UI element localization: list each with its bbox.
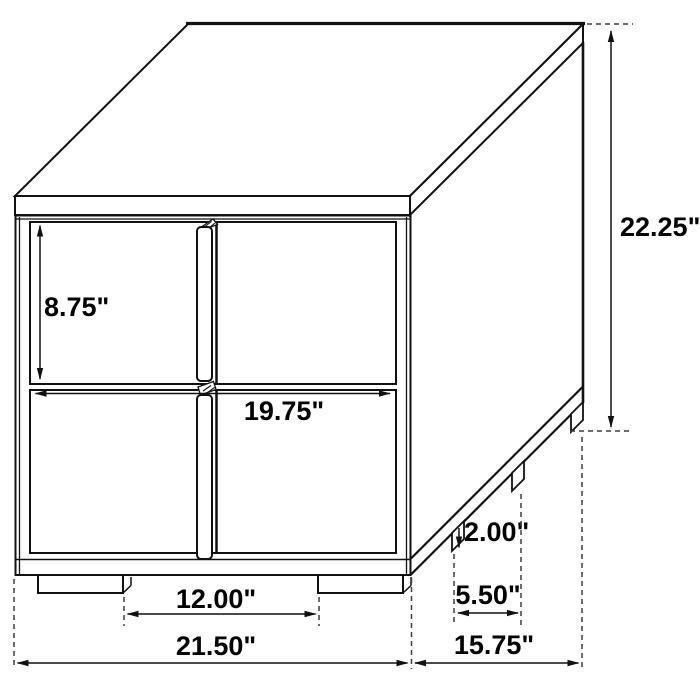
- dimension-label-drawer-width: 19.75": [244, 396, 324, 426]
- dimension-label-overall-width: 21.50": [176, 631, 256, 661]
- side-leg-back: [571, 402, 583, 432]
- side-skirt-bottom: [411, 403, 583, 575]
- dimension-front-leg-spacing: 12.00": [124, 584, 319, 626]
- top-slab-front: [15, 196, 410, 215]
- dimension-leg-height: 2.00": [459, 517, 529, 548]
- drawer-top-handle: [197, 219, 218, 395]
- front-leg-right: [318, 575, 403, 593]
- front-leg-left: [38, 575, 123, 593]
- dimension-diagram-canvas: 8.75" 19.75" 22.25" 2.00" 5.50" 12.00" 2…: [0, 0, 700, 700]
- dimension-overall-height: 22.25": [570, 24, 700, 431]
- dimension-label-overall-height: 22.25": [620, 212, 700, 242]
- dimension-drawer-height: 8.75": [40, 226, 109, 380]
- nightstand-dimension-diagram: 8.75" 19.75" 22.25" 2.00" 5.50" 12.00" 2…: [0, 0, 700, 700]
- dimension-label-overall-depth: 15.75": [454, 630, 534, 660]
- drawer-bottom-handle: [197, 395, 212, 559]
- dimension-side-leg-spacing: 5.50": [454, 494, 521, 626]
- side-leg-middle: [512, 461, 524, 491]
- cabinet-top-face: [15, 24, 585, 216]
- dimension-label-leg-height: 2.00": [464, 517, 529, 547]
- dimension-label-drawer-height: 8.75": [44, 292, 109, 322]
- dimension-label-side-leg-spacing: 5.50": [455, 580, 520, 610]
- dimension-label-front-leg-spacing: 12.00": [176, 584, 256, 614]
- side-leg-front: [452, 521, 464, 551]
